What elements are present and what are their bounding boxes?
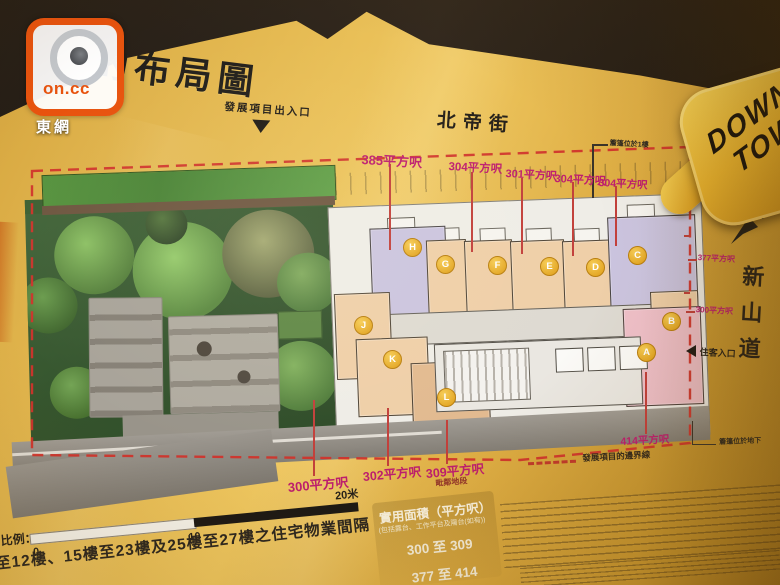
unit-letter: B: [668, 316, 675, 327]
leader-line: [521, 178, 523, 254]
unit-letter: D: [592, 262, 599, 273]
resident-entrance-label: 住客入口: [699, 345, 736, 360]
area-label-right-1: 300平方呎: [695, 304, 733, 317]
unit-badge-E: E: [540, 257, 559, 276]
area-label-right-0: 377平方呎: [697, 252, 735, 265]
area-label-top-2: 301平方呎: [505, 165, 557, 184]
unit-badge-L: L: [437, 388, 456, 407]
unit-badge-A: A: [637, 343, 656, 362]
development-logo: DOWN TOWN: [650, 72, 780, 252]
note-connector: [592, 144, 608, 146]
unit-letter: L: [444, 392, 450, 403]
photo-of-layout-board: A B C D E F G H J K L 385平方呎 304平方呎 301平…: [0, 0, 780, 585]
canopy-note-top: 簷篷位於1樓: [609, 138, 648, 150]
oncc-watermark: on.cc 東網: [22, 14, 122, 139]
unit-badge-F: F: [488, 256, 507, 275]
unit-badge-C: C: [628, 246, 647, 265]
unit-badge-J: J: [354, 316, 373, 335]
oncc-logo-square: on.cc: [26, 18, 124, 116]
leader-line: [389, 164, 391, 250]
leader-line: [572, 182, 574, 256]
leader-line: [471, 172, 473, 252]
oncc-site-name: 東網: [36, 116, 72, 137]
unit-letter: H: [409, 242, 416, 253]
street-name-right: 新山道: [730, 264, 768, 374]
area-label-bottom-3: 414平方呎: [620, 431, 670, 449]
unit-letter: F: [495, 260, 501, 271]
unit-badge-H: H: [403, 238, 422, 257]
leader-line: [645, 372, 647, 434]
leader-line: [615, 186, 617, 246]
unit-letter: K: [389, 354, 396, 365]
unit-badge-B: B: [662, 312, 681, 331]
unit-badge-K: K: [383, 350, 402, 369]
entrance-arrow-left: [686, 345, 696, 357]
area-table: 實用面積（平方呎） (包括露台、工作平台及陽台(如有)) 300 至 309 3…: [376, 492, 515, 585]
leader-line: [387, 408, 389, 466]
unit-letter: G: [442, 259, 449, 270]
canopy-note-bottom: 簷篷位於地下: [719, 436, 761, 447]
unit-letter: E: [546, 261, 552, 272]
leader-tick: [688, 259, 697, 261]
unit-badge-G: G: [436, 255, 455, 274]
leader-tick: [686, 311, 695, 313]
unit-badge-D: D: [586, 258, 605, 277]
area-label-top-0: 385平方呎: [361, 149, 423, 171]
oncc-lens-pupil: [70, 47, 88, 65]
leader-line: [446, 420, 448, 464]
leader-tick: [684, 292, 690, 294]
oncc-brand-text: on.cc: [43, 79, 90, 99]
note-connector: [692, 444, 716, 445]
unit-letter: J: [361, 320, 366, 331]
leader-line: [313, 400, 315, 476]
street-name-top: 北帝街: [436, 105, 516, 137]
logo-wordmark: DOWN TOWN: [702, 67, 780, 189]
note-connector: [692, 421, 693, 445]
area-label-top-4: 304平方呎: [598, 175, 648, 193]
unit-letter: A: [643, 347, 650, 358]
area-label-top-1: 304平方呎: [448, 158, 502, 177]
scale-tick-20m: 20米: [334, 485, 359, 503]
entrance-arrow-down: [252, 120, 271, 134]
unit-letter: C: [634, 250, 641, 261]
